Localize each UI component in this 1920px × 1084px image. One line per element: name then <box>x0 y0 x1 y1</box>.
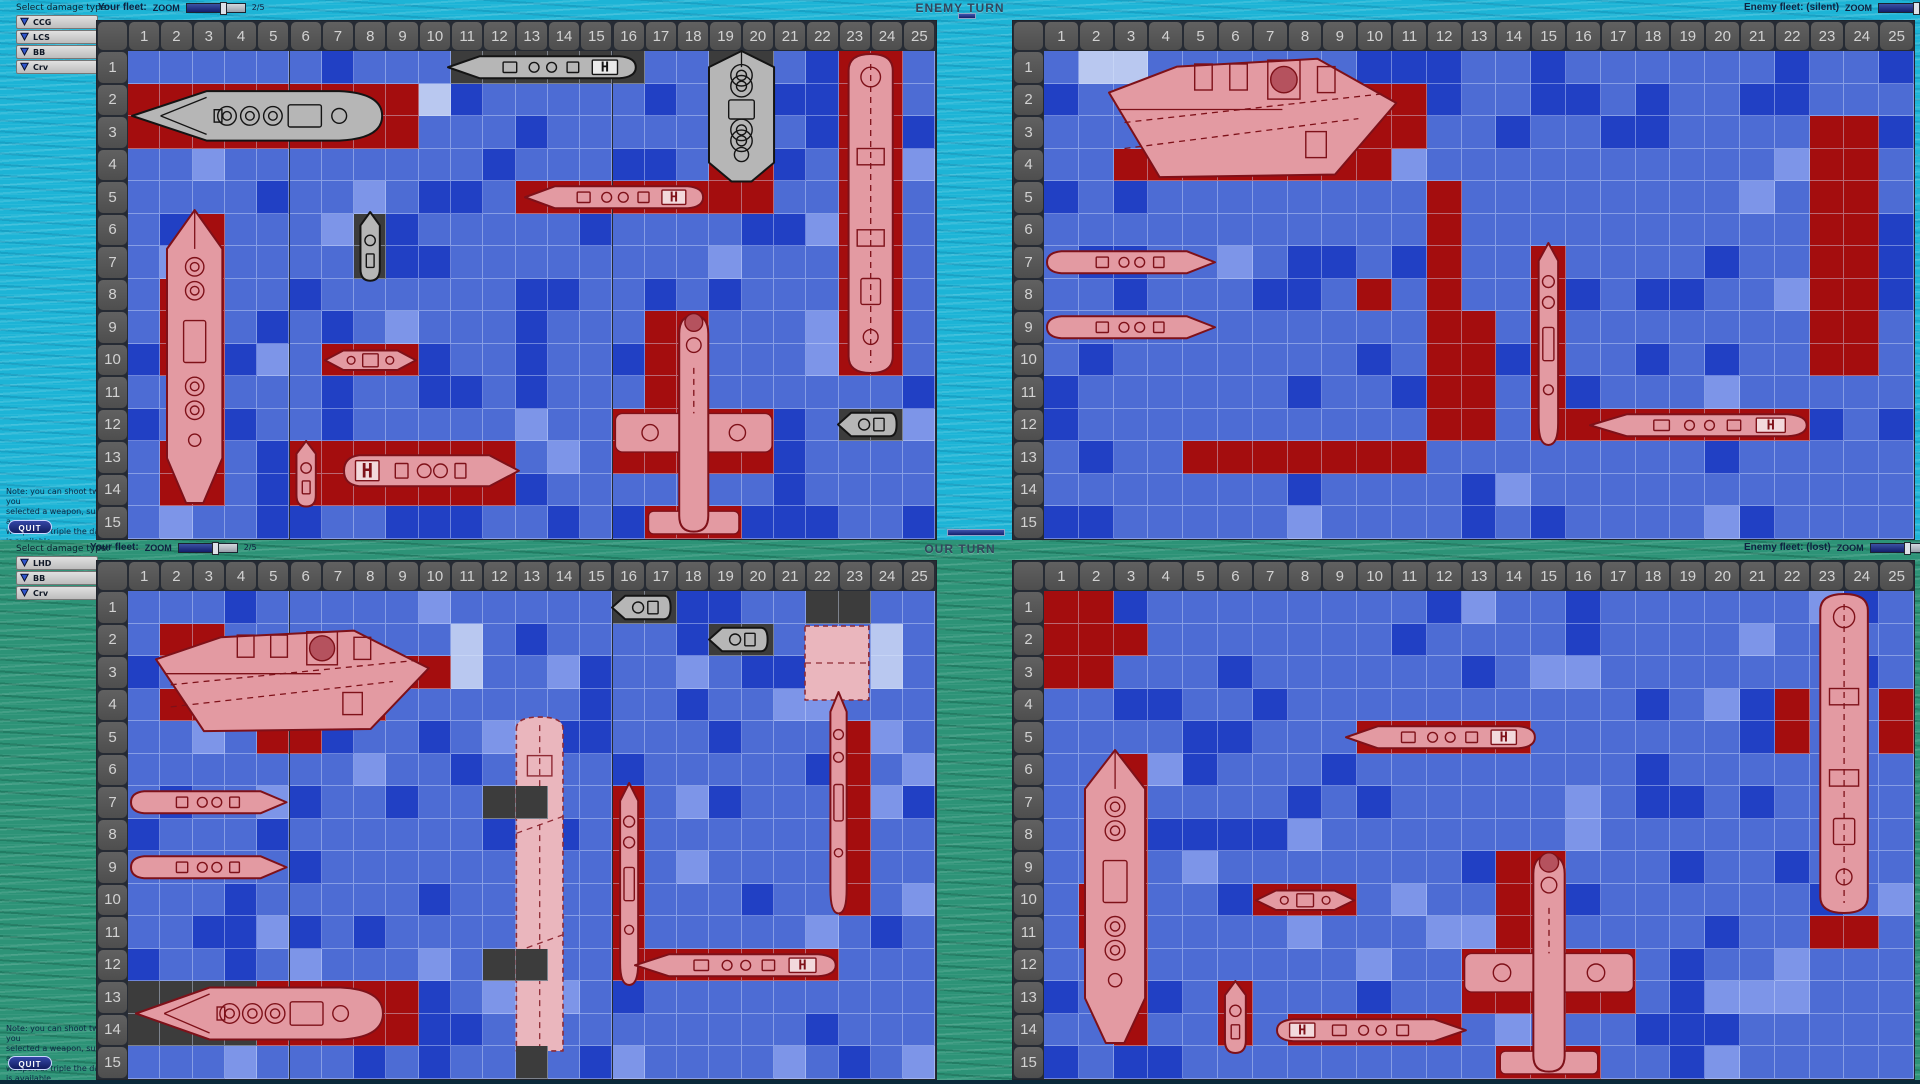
miss-cell[interactable] <box>225 409 257 442</box>
water-cell[interactable] <box>1357 754 1392 787</box>
water-cell[interactable] <box>774 376 806 409</box>
water-cell[interactable] <box>516 656 548 689</box>
water-cell[interactable] <box>1392 1046 1427 1079</box>
water-cell[interactable] <box>1044 884 1079 917</box>
water-cell[interactable] <box>871 1046 903 1079</box>
water-cell[interactable] <box>1705 981 1740 1014</box>
miss-cell[interactable] <box>774 441 806 474</box>
water-cell[interactable] <box>1253 376 1288 409</box>
water-cell[interactable] <box>774 916 806 949</box>
water-cell[interactable] <box>1288 949 1323 982</box>
water-cell[interactable] <box>839 916 871 949</box>
hit-cell[interactable] <box>1810 311 1845 344</box>
water-cell[interactable] <box>1044 819 1079 852</box>
water-cell[interactable] <box>1775 819 1810 852</box>
water-cell[interactable] <box>903 656 935 689</box>
water-cell[interactable] <box>1427 851 1462 884</box>
water-cell[interactable] <box>742 591 774 624</box>
water-cell[interactable] <box>225 754 257 787</box>
water-cell[interactable] <box>1288 506 1323 539</box>
miss-cell[interactable] <box>1044 1046 1079 1079</box>
miss-cell[interactable] <box>677 591 709 624</box>
water-cell[interactable] <box>1705 474 1740 507</box>
water-cell[interactable] <box>1218 376 1253 409</box>
miss-cell[interactable] <box>419 1046 451 1079</box>
water-cell[interactable] <box>580 506 612 539</box>
water-cell[interactable] <box>1079 689 1114 722</box>
water-cell[interactable] <box>516 246 548 279</box>
water-cell[interactable] <box>742 246 774 279</box>
miss-cell[interactable] <box>1670 851 1705 884</box>
water-cell[interactable] <box>709 884 741 917</box>
miss-cell[interactable] <box>257 441 289 474</box>
water-cell[interactable] <box>1079 1046 1114 1079</box>
miss-cell[interactable] <box>1775 851 1810 884</box>
hit-cell[interactable] <box>1775 721 1810 754</box>
water-cell[interactable] <box>613 624 645 657</box>
water-cell[interactable] <box>1775 949 1810 982</box>
water-cell[interactable] <box>1496 474 1531 507</box>
water-cell[interactable] <box>257 246 289 279</box>
water-cell[interactable] <box>1496 591 1531 624</box>
miss-cell[interactable] <box>1670 981 1705 1014</box>
miss-cell[interactable] <box>225 591 257 624</box>
water-cell[interactable] <box>1740 916 1775 949</box>
revealed-cell[interactable] <box>806 591 838 624</box>
water-cell[interactable] <box>1601 689 1636 722</box>
water-cell[interactable] <box>871 1014 903 1047</box>
miss-cell[interactable] <box>1183 754 1218 787</box>
miss-cell[interactable] <box>419 884 451 917</box>
water-cell[interactable] <box>1636 949 1671 982</box>
water-cell[interactable] <box>128 246 160 279</box>
water-cell[interactable] <box>1288 981 1323 1014</box>
water-cell[interactable] <box>193 819 225 852</box>
water-cell[interactable] <box>1218 214 1253 247</box>
water-cell[interactable] <box>1740 344 1775 377</box>
water-cell[interactable] <box>1879 149 1914 182</box>
water-cell[interactable] <box>1392 214 1427 247</box>
water-cell[interactable] <box>1844 84 1879 117</box>
water-cell[interactable] <box>1496 689 1531 722</box>
water-cell[interactable] <box>257 214 289 247</box>
water-cell[interactable] <box>225 246 257 279</box>
water-cell[interactable] <box>419 116 451 149</box>
miss-cell[interactable] <box>709 279 741 312</box>
water-cell[interactable] <box>290 949 322 982</box>
miss-cell[interactable] <box>1810 409 1845 442</box>
water-cell[interactable] <box>1740 279 1775 312</box>
water-cell[interactable] <box>1288 409 1323 442</box>
water-cell[interactable] <box>419 916 451 949</box>
miss-cell[interactable] <box>516 344 548 377</box>
water-cell[interactable] <box>483 591 515 624</box>
water-cell[interactable] <box>1218 949 1253 982</box>
water-cell[interactable] <box>1148 786 1183 819</box>
water-cell[interactable] <box>1392 949 1427 982</box>
water-cell[interactable] <box>1462 51 1497 84</box>
water-cell[interactable] <box>1392 409 1427 442</box>
water-cell[interactable] <box>774 689 806 722</box>
water-cell[interactable] <box>1357 689 1392 722</box>
water-cell[interactable] <box>903 409 935 442</box>
water-cell[interactable] <box>1253 311 1288 344</box>
hit-cell[interactable] <box>1427 409 1462 442</box>
water-cell[interactable] <box>1601 624 1636 657</box>
hit-cell[interactable] <box>1079 591 1114 624</box>
miss-cell[interactable] <box>1253 279 1288 312</box>
water-cell[interactable] <box>1288 916 1323 949</box>
miss-cell[interactable] <box>1740 506 1775 539</box>
water-cell[interactable] <box>774 344 806 377</box>
water-cell[interactable] <box>1879 981 1914 1014</box>
water-cell[interactable] <box>677 981 709 1014</box>
miss-cell[interactable] <box>1114 591 1149 624</box>
water-cell[interactable] <box>1670 754 1705 787</box>
water-cell[interactable] <box>1705 51 1740 84</box>
miss-cell[interactable] <box>386 506 418 539</box>
water-cell[interactable] <box>1079 181 1114 214</box>
water-cell[interactable] <box>1740 474 1775 507</box>
miss-cell[interactable] <box>1879 51 1914 84</box>
water-cell[interactable] <box>483 344 515 377</box>
miss-cell[interactable] <box>354 1046 386 1079</box>
water-cell[interactable] <box>1392 591 1427 624</box>
water-cell[interactable] <box>580 786 612 819</box>
water-cell[interactable] <box>1392 689 1427 722</box>
water-cell[interactable] <box>1044 214 1079 247</box>
water-cell[interactable] <box>1740 884 1775 917</box>
water-cell[interactable] <box>1670 884 1705 917</box>
miss-cell[interactable] <box>128 819 160 852</box>
water-cell[interactable] <box>839 1014 871 1047</box>
water-cell[interactable] <box>1670 506 1705 539</box>
water-cell[interactable] <box>645 754 677 787</box>
miss-cell[interactable] <box>483 149 515 182</box>
water-cell[interactable] <box>774 246 806 279</box>
miss-cell[interactable] <box>1148 981 1183 1014</box>
water-cell[interactable] <box>580 916 612 949</box>
water-cell[interactable] <box>128 149 160 182</box>
hit-cell[interactable] <box>1844 311 1879 344</box>
hit-cell[interactable] <box>1462 409 1497 442</box>
water-cell[interactable] <box>645 884 677 917</box>
water-cell[interactable] <box>903 981 935 1014</box>
hit-cell[interactable] <box>1427 311 1462 344</box>
water-cell[interactable] <box>128 181 160 214</box>
water-cell[interactable] <box>580 344 612 377</box>
water-cell[interactable] <box>677 656 709 689</box>
water-cell[interactable] <box>1392 851 1427 884</box>
water-cell[interactable] <box>1636 214 1671 247</box>
water-cell[interactable] <box>1288 851 1323 884</box>
water-cell[interactable] <box>193 591 225 624</box>
water-cell[interactable] <box>1775 474 1810 507</box>
water-cell[interactable] <box>1253 624 1288 657</box>
water-cell[interactable] <box>1183 181 1218 214</box>
miss-cell[interactable] <box>1392 376 1427 409</box>
water-cell[interactable] <box>709 214 741 247</box>
water-cell[interactable] <box>225 474 257 507</box>
miss-cell[interactable] <box>1879 279 1914 312</box>
water-cell[interactable] <box>257 376 289 409</box>
water-cell[interactable] <box>1810 506 1845 539</box>
water-cell[interactable] <box>1322 851 1357 884</box>
water-cell[interactable] <box>1636 851 1671 884</box>
miss-cell[interactable] <box>322 311 354 344</box>
miss-cell[interactable] <box>548 506 580 539</box>
water-cell[interactable] <box>290 409 322 442</box>
water-cell[interactable] <box>1427 149 1462 182</box>
hit-cell[interactable] <box>1810 344 1845 377</box>
water-cell[interactable] <box>1322 181 1357 214</box>
water-cell[interactable] <box>709 656 741 689</box>
water-cell[interactable] <box>1601 51 1636 84</box>
water-cell[interactable] <box>677 786 709 819</box>
water-cell[interactable] <box>1392 656 1427 689</box>
miss-cell[interactable] <box>225 344 257 377</box>
water-cell[interactable] <box>1810 949 1845 982</box>
miss-cell[interactable] <box>1636 786 1671 819</box>
miss-cell[interactable] <box>1705 1014 1740 1047</box>
water-cell[interactable] <box>516 149 548 182</box>
miss-cell[interactable] <box>1392 246 1427 279</box>
miss-cell[interactable] <box>1670 279 1705 312</box>
miss-cell[interactable] <box>257 311 289 344</box>
water-cell[interactable] <box>871 591 903 624</box>
water-cell[interactable] <box>128 441 160 474</box>
water-cell[interactable] <box>806 311 838 344</box>
water-cell[interactable] <box>1427 819 1462 852</box>
water-cell[interactable] <box>548 376 580 409</box>
water-cell[interactable] <box>386 409 418 442</box>
water-cell[interactable] <box>1636 656 1671 689</box>
miss-cell[interactable] <box>1775 84 1810 117</box>
water-cell[interactable] <box>709 851 741 884</box>
water-cell[interactable] <box>451 344 483 377</box>
water-cell[interactable] <box>354 506 386 539</box>
board-enemy-fleet-top[interactable]: 1234567891011121314151617181920212223242… <box>1012 20 1915 540</box>
water-cell[interactable] <box>386 819 418 852</box>
miss-cell[interactable] <box>1636 689 1671 722</box>
water-cell[interactable] <box>1357 311 1392 344</box>
water-cell[interactable] <box>1288 819 1323 852</box>
water-cell[interactable] <box>1462 116 1497 149</box>
water-cell[interactable] <box>1392 884 1427 917</box>
water-cell[interactable] <box>903 474 935 507</box>
miss-cell[interactable] <box>1566 376 1601 409</box>
water-cell[interactable] <box>1670 721 1705 754</box>
miss-cell[interactable] <box>580 656 612 689</box>
water-cell[interactable] <box>645 689 677 722</box>
water-cell[interactable] <box>451 214 483 247</box>
water-cell[interactable] <box>903 441 935 474</box>
miss-cell[interactable] <box>1218 884 1253 917</box>
water-cell[interactable] <box>1253 409 1288 442</box>
water-cell[interactable] <box>903 84 935 117</box>
water-cell[interactable] <box>1148 376 1183 409</box>
water-cell[interactable] <box>548 409 580 442</box>
water-cell[interactable] <box>742 754 774 787</box>
water-cell[interactable] <box>1044 474 1079 507</box>
miss-cell[interactable] <box>419 181 451 214</box>
miss-cell[interactable] <box>451 506 483 539</box>
water-cell[interactable] <box>160 591 192 624</box>
miss-cell[interactable] <box>1636 84 1671 117</box>
water-cell[interactable] <box>516 214 548 247</box>
water-cell[interactable] <box>322 851 354 884</box>
water-cell[interactable] <box>516 84 548 117</box>
water-cell[interactable] <box>1392 279 1427 312</box>
water-cell[interactable] <box>257 51 289 84</box>
water-cell[interactable] <box>1566 344 1601 377</box>
water-cell[interactable] <box>1740 149 1775 182</box>
water-cell[interactable] <box>1114 344 1149 377</box>
miss-cell[interactable] <box>774 506 806 539</box>
water-cell[interactable] <box>903 1046 935 1079</box>
miss-cell[interactable] <box>1044 376 1079 409</box>
water-cell[interactable] <box>903 344 935 377</box>
water-cell[interactable] <box>742 689 774 722</box>
water-cell[interactable] <box>354 311 386 344</box>
water-cell[interactable] <box>645 1014 677 1047</box>
water-cell[interactable] <box>1705 884 1740 917</box>
water-cell[interactable] <box>1357 376 1392 409</box>
water-cell[interactable] <box>1810 981 1845 1014</box>
water-cell[interactable] <box>1357 181 1392 214</box>
water-cell[interactable] <box>580 246 612 279</box>
miss-cell[interactable] <box>742 884 774 917</box>
water-cell[interactable] <box>1357 656 1392 689</box>
water-cell[interactable] <box>225 149 257 182</box>
water-cell[interactable] <box>613 721 645 754</box>
water-cell[interactable] <box>1218 279 1253 312</box>
water-cell[interactable] <box>451 689 483 722</box>
water-cell[interactable] <box>1670 689 1705 722</box>
water-cell[interactable] <box>451 851 483 884</box>
miss-cell[interactable] <box>225 916 257 949</box>
miss-cell[interactable] <box>774 214 806 247</box>
water-cell[interactable] <box>839 376 871 409</box>
water-cell[interactable] <box>386 181 418 214</box>
water-cell[interactable] <box>322 884 354 917</box>
water-cell[interactable] <box>1705 591 1740 624</box>
damage-type-option-crv[interactable]: Crv <box>16 586 98 600</box>
water-cell[interactable] <box>903 949 935 982</box>
zoom-slider[interactable] <box>178 543 238 553</box>
water-cell[interactable] <box>645 656 677 689</box>
water-cell[interactable] <box>1601 376 1636 409</box>
miss-cell[interactable] <box>1322 246 1357 279</box>
water-cell[interactable] <box>1044 149 1079 182</box>
water-cell[interactable] <box>1705 506 1740 539</box>
miss-cell[interactable] <box>1044 84 1079 117</box>
water-cell[interactable] <box>903 884 935 917</box>
water-cell[interactable] <box>1775 246 1810 279</box>
water-cell[interactable] <box>1775 916 1810 949</box>
water-cell[interactable] <box>1705 84 1740 117</box>
water-cell[interactable] <box>1462 149 1497 182</box>
water-cell[interactable] <box>1253 754 1288 787</box>
water-cell[interactable] <box>1496 214 1531 247</box>
water-cell[interactable] <box>1810 441 1845 474</box>
water-cell[interactable] <box>677 1014 709 1047</box>
water-cell[interactable] <box>548 311 580 344</box>
hit-cell[interactable] <box>742 181 774 214</box>
water-cell[interactable] <box>1148 624 1183 657</box>
water-cell[interactable] <box>1148 1014 1183 1047</box>
miss-cell[interactable] <box>1636 754 1671 787</box>
water-cell[interactable] <box>677 819 709 852</box>
water-cell[interactable] <box>1601 279 1636 312</box>
water-cell[interactable] <box>1496 754 1531 787</box>
water-cell[interactable] <box>1288 1046 1323 1079</box>
miss-cell[interactable] <box>225 884 257 917</box>
water-cell[interactable] <box>160 506 192 539</box>
board-your-fleet-top[interactable]: 1234567891011121314151617181920212223242… <box>96 20 937 540</box>
water-cell[interactable] <box>1636 1046 1671 1079</box>
water-cell[interactable] <box>1253 1046 1288 1079</box>
water-cell[interactable] <box>1531 116 1566 149</box>
water-cell[interactable] <box>645 246 677 279</box>
water-cell[interactable] <box>1322 916 1357 949</box>
miss-cell[interactable] <box>1496 116 1531 149</box>
water-cell[interactable] <box>839 506 871 539</box>
water-cell[interactable] <box>1775 181 1810 214</box>
water-cell[interactable] <box>483 279 515 312</box>
water-cell[interactable] <box>903 279 935 312</box>
water-cell[interactable] <box>483 409 515 442</box>
water-cell[interactable] <box>774 591 806 624</box>
water-cell[interactable] <box>806 376 838 409</box>
water-cell[interactable] <box>1322 786 1357 819</box>
water-cell[interactable] <box>1044 116 1079 149</box>
hit-cell[interactable] <box>1810 279 1845 312</box>
water-cell[interactable] <box>677 214 709 247</box>
water-cell[interactable] <box>1740 1014 1775 1047</box>
water-cell[interactable] <box>903 624 935 657</box>
miss-cell[interactable] <box>1462 474 1497 507</box>
water-cell[interactable] <box>742 279 774 312</box>
miss-cell[interactable] <box>1392 624 1427 657</box>
water-cell[interactable] <box>1601 246 1636 279</box>
water-cell[interactable] <box>1357 819 1392 852</box>
water-cell[interactable] <box>548 591 580 624</box>
water-cell[interactable] <box>1357 949 1392 982</box>
water-cell[interactable] <box>774 721 806 754</box>
water-cell[interactable] <box>709 819 741 852</box>
water-cell[interactable] <box>1670 376 1705 409</box>
water-cell[interactable] <box>1322 981 1357 1014</box>
water-cell[interactable] <box>1357 474 1392 507</box>
water-cell[interactable] <box>1705 656 1740 689</box>
miss-cell[interactable] <box>386 786 418 819</box>
water-cell[interactable] <box>1636 819 1671 852</box>
miss-cell[interactable] <box>580 721 612 754</box>
water-cell[interactable] <box>257 754 289 787</box>
water-cell[interactable] <box>742 1046 774 1079</box>
water-cell[interactable] <box>354 884 386 917</box>
hit-cell[interactable] <box>386 1014 418 1047</box>
miss-cell[interactable] <box>1218 721 1253 754</box>
water-cell[interactable] <box>1879 441 1914 474</box>
water-cell[interactable] <box>1775 376 1810 409</box>
water-cell[interactable] <box>1810 51 1845 84</box>
water-cell[interactable] <box>1496 506 1531 539</box>
water-cell[interactable] <box>1601 474 1636 507</box>
hit-cell[interactable] <box>1462 311 1497 344</box>
water-cell[interactable] <box>1810 1046 1845 1079</box>
